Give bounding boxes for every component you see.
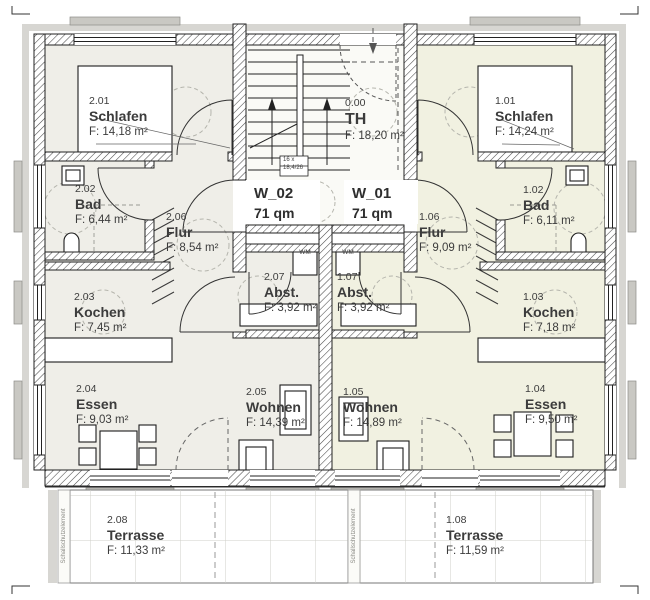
kitchen-counter-right	[478, 338, 605, 362]
floor-plan: 2.01 Schlafen F: 14,18 m² 2.02 Bad F: 6,…	[0, 0, 650, 600]
sound-wall-label-left: Schallschutzelement	[61, 508, 67, 563]
shelf-left	[240, 304, 317, 326]
couch-left	[239, 440, 273, 470]
apartment-label-w02: W_02 71 qm	[254, 184, 294, 222]
terraces	[45, 487, 605, 583]
cabinet-right	[339, 397, 368, 441]
wall-apartment-divider	[319, 225, 332, 470]
bed-right	[478, 66, 572, 152]
kitchen-counter-left	[45, 338, 172, 362]
washing-machine-label-right: WM	[337, 249, 359, 256]
sound-wall-label-center: Schallschutzelement	[351, 508, 357, 563]
cabinet-left	[280, 385, 311, 435]
couch-right	[377, 441, 409, 471]
apartment-label-w01: W_01 71 qm	[352, 184, 392, 222]
washing-machine-label-left: WM	[294, 249, 316, 256]
floor-plan-drawing	[0, 0, 650, 600]
stair-dimension-note: 16 x 18,4/26	[283, 157, 303, 173]
bed-left	[78, 66, 172, 152]
